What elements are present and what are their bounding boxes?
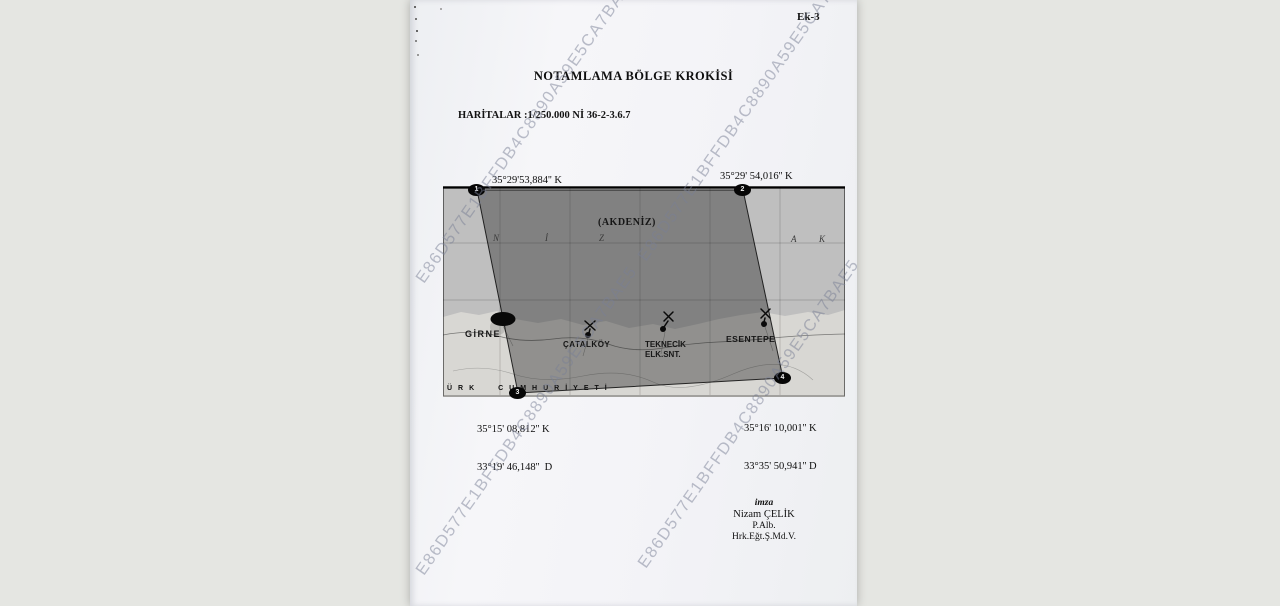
signature-name: Nizam ÇELİK [700,509,828,520]
signature-block: imza Nizam ÇELİK P.Alb. Hrk.Eğt.Ş.Md.V. [700,498,828,542]
scan-specks [414,6,416,8]
maps-reference: HARİTALAR :1/250.000 Nİ 36-2-3.6.7 [458,110,630,121]
sea-letter: K [819,234,825,244]
town-label-girne: GİRNE [465,329,501,339]
signature-rank: P.Alb. [700,521,828,531]
town-label-teknecik-line1: TEKNECİK [645,340,686,350]
sea-letter: A [791,234,797,244]
corner-marker-4: 4 [774,372,791,384]
sea-letter: İ [545,233,548,243]
scan-backdrop: Ek-3 NOTAMLAMA BÖLGE KROKİSİ HARİTALAR :… [0,0,1280,606]
town-label-teknecik-line2: ELK.SNT. [645,350,686,360]
corner-marker-2: 2 [734,184,751,196]
coords-bottom-left-lon: 33°19' 46,148'' D [477,462,552,475]
town-label-catalkoy: ÇATALKÖY [563,340,610,349]
sea-letter: N [493,233,499,243]
coords-bottom-left-lat: 35°15' 08,812'' K [477,424,552,437]
coords-top-right-lat: 35°29' 54,016'' K [720,171,793,184]
annex-label: Ek-3 [797,11,820,23]
coords-bottom-left: 35°15' 08,812'' K 33°19' 46,148'' D [477,399,552,499]
coords-bottom-right-lon: 33°35' 50,941'' D [744,461,817,474]
sea-label: (AKDENİZ) [598,217,656,228]
map-lettering-cumhuriyeti: ÜRK CUMHURİYETİ [447,385,613,392]
town-label-esentepe: ESENTEPE [726,334,775,344]
page-title: NOTAMLAMA BÖLGE KROKİSİ [410,69,857,84]
coords-bottom-right-lat: 35°16' 10,001'' K [744,423,817,436]
signature-duty: Hrk.Eğt.Ş.Md.V. [700,532,828,542]
corner-marker-3: 3 [509,387,526,399]
girne-harbor-blob [491,312,516,326]
corner-marker-1: 1 [468,184,485,196]
town-label-teknecik: TEKNECİK ELK.SNT. [645,340,686,359]
sea-letter: Z [599,233,604,243]
coords-bottom-right: 35°16' 10,001'' K 33°35' 50,941'' D [744,398,817,498]
signature-imza-label: imza [700,498,828,508]
